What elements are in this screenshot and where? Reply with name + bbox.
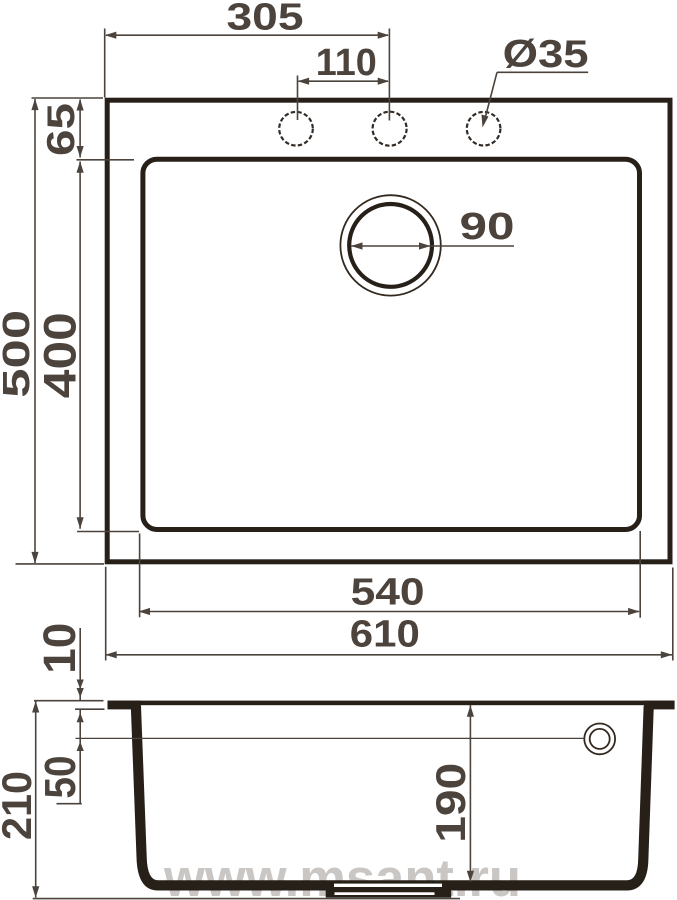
svg-text:500: 500 xyxy=(0,310,38,398)
svg-text:210: 210 xyxy=(0,771,40,840)
svg-text:110: 110 xyxy=(316,42,377,84)
svg-text:Ø35: Ø35 xyxy=(503,33,589,76)
svg-text:400: 400 xyxy=(35,312,86,398)
svg-text:90: 90 xyxy=(460,206,515,248)
svg-text:10: 10 xyxy=(34,623,85,674)
svg-text:540: 540 xyxy=(351,572,425,614)
svg-text:50: 50 xyxy=(36,756,85,799)
svg-text:65: 65 xyxy=(40,103,83,156)
svg-text:610: 610 xyxy=(350,614,420,656)
svg-text:305: 305 xyxy=(227,0,304,38)
svg-text:190: 190 xyxy=(427,763,474,843)
